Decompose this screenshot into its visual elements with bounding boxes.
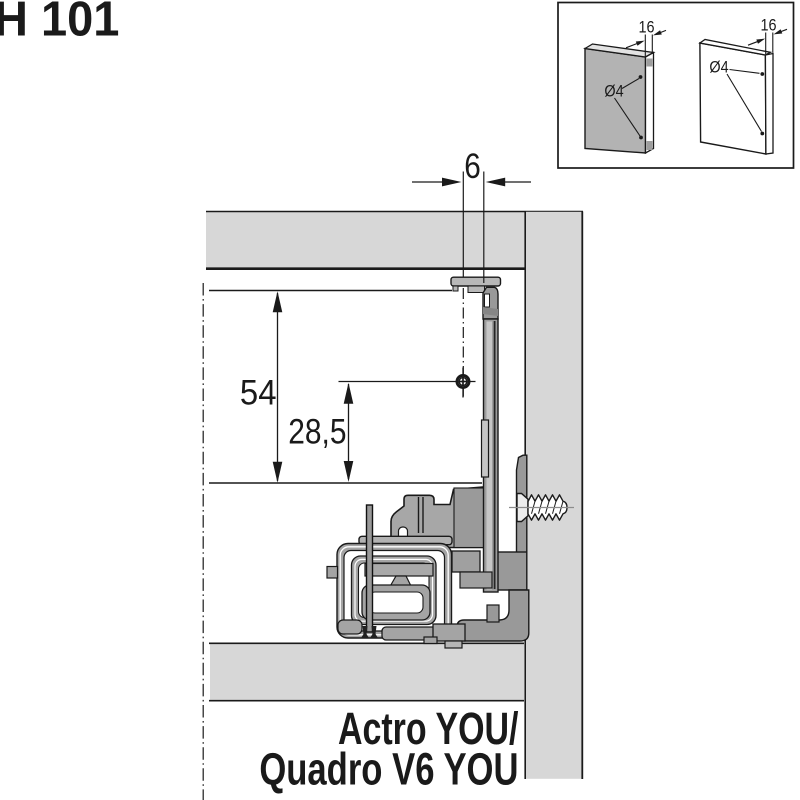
svg-text:28,5: 28,5 — [288, 412, 346, 451]
svg-text:Ø4: Ø4 — [604, 82, 623, 100]
svg-text:Ø4: Ø4 — [709, 58, 728, 76]
svg-text:54: 54 — [240, 374, 277, 413]
svg-text:H 101: H 101 — [0, 0, 119, 47]
svg-text:16: 16 — [760, 16, 776, 34]
svg-text:6: 6 — [464, 147, 481, 186]
svg-text:Quadro V6 YOU: Quadro V6 YOU — [259, 744, 518, 794]
svg-text:16: 16 — [638, 18, 654, 36]
